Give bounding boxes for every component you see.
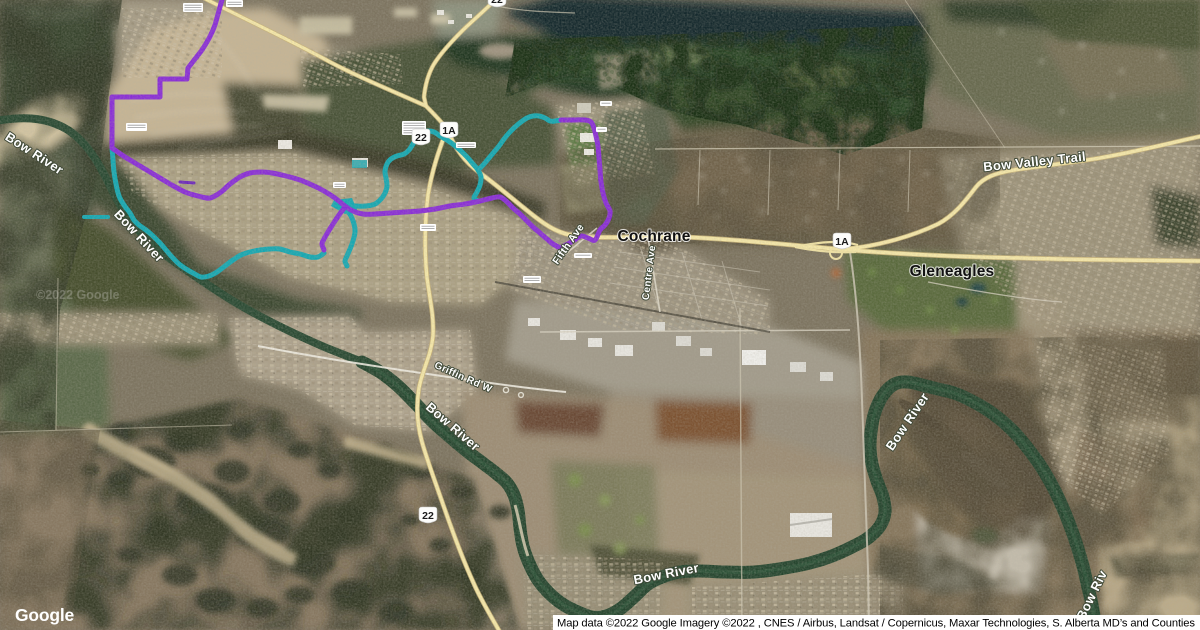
svg-text:Cochrane: Cochrane <box>617 228 690 245</box>
svg-text:22: 22 <box>422 510 434 522</box>
svg-text:22: 22 <box>491 0 503 6</box>
svg-text:22: 22 <box>415 132 427 144</box>
svg-text:1A: 1A <box>442 125 456 137</box>
svg-text:Google: Google <box>15 605 75 625</box>
svg-text:1A: 1A <box>835 236 849 248</box>
svg-text:©2022 Google: ©2022 Google <box>36 288 120 302</box>
svg-text:Gleneagles: Gleneagles <box>910 263 995 280</box>
svg-text:Map data ©2022 Google Imagery: Map data ©2022 Google Imagery ©2022 , CN… <box>557 618 1195 630</box>
